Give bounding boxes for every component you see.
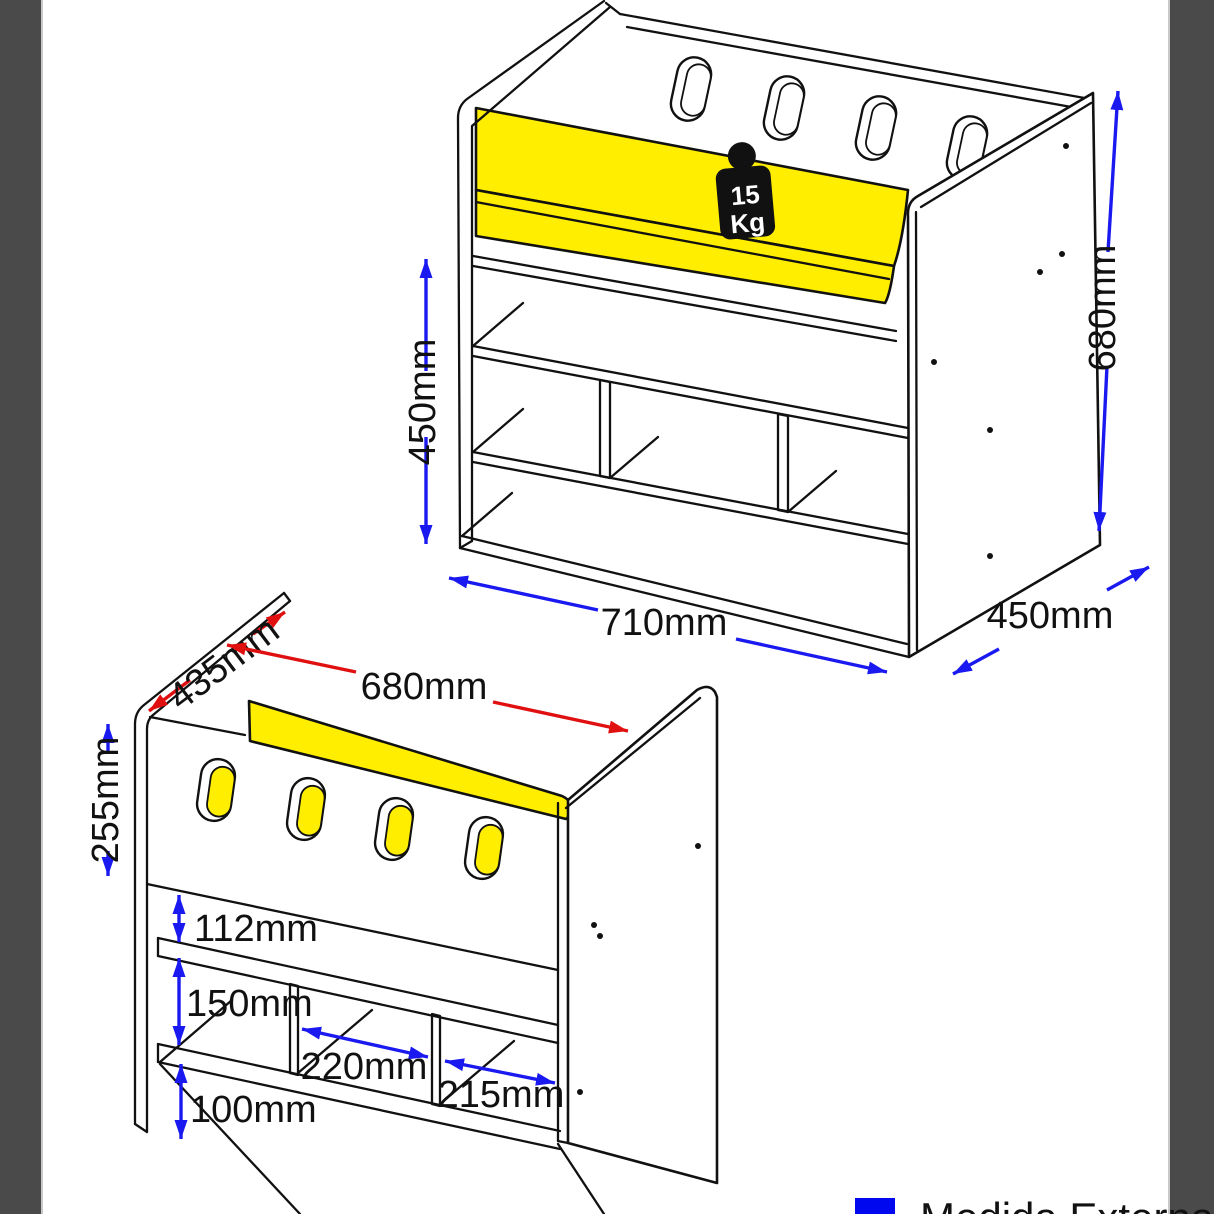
- shelf-structure-front: [460, 256, 909, 657]
- inner-width-label: 680mm: [361, 666, 488, 708]
- panel-height-dimension: 255mm: [85, 724, 127, 876]
- back-depth-label: 435mm: [161, 609, 287, 719]
- legend: Medida Externa: [855, 1194, 1214, 1214]
- oval-cutout: [373, 796, 415, 862]
- right-cubby-dimension: 215mm: [438, 1061, 565, 1116]
- furniture-dimension-diagram: 15 Kg 450mm 680mm 710mm: [0, 0, 1214, 1214]
- top-gap-label: 112mm: [194, 908, 318, 950]
- weight-unit: Kg: [729, 206, 766, 239]
- right-side-panel-back: [558, 687, 717, 1183]
- bottom-gap-label: 100mm: [190, 1089, 317, 1131]
- panel-height-label: 255mm: [85, 737, 127, 864]
- middle-gap-label: 150mm: [186, 983, 313, 1025]
- width-label: 710mm: [601, 602, 728, 644]
- left-side-panel: [458, 1, 610, 548]
- seat-cushion: [476, 108, 908, 303]
- front-isometric-view: 15 Kg 450mm 680mm 710mm: [402, 1, 1149, 674]
- seat-height-label: 450mm: [402, 339, 444, 466]
- oval-cutout: [285, 776, 327, 842]
- right-side-panel: [908, 93, 1100, 657]
- oval-cutout: [853, 93, 900, 163]
- external-measure-swatch: [855, 1198, 895, 1214]
- middle-gap-dimension: 150mm: [179, 958, 313, 1045]
- back-isometric-view: 435mm 680mm 255mm 112mm: [85, 593, 717, 1214]
- total-height-label: 680mm: [1082, 245, 1124, 372]
- oval-cutout: [463, 815, 505, 881]
- oval-cutout: [668, 54, 715, 124]
- back-view-red-dimensions: 435mm 680mm: [149, 609, 628, 731]
- depth-label: 450mm: [987, 595, 1114, 637]
- middle-cubby-label: 220mm: [301, 1046, 428, 1088]
- diagram-canvas: 15 Kg 450mm 680mm 710mm: [0, 0, 1214, 1214]
- oval-cutout: [761, 73, 808, 143]
- right-cubby-label: 215mm: [438, 1074, 565, 1116]
- top-gap-dimension: 112mm: [179, 895, 318, 950]
- middle-cubby-dimension: 220mm: [301, 1029, 428, 1088]
- width-dimension: 710mm: [449, 578, 887, 672]
- seat-height-dimension: 450mm: [402, 259, 444, 544]
- oval-cutout: [195, 757, 237, 823]
- external-measure-label: Medida Externa: [920, 1194, 1214, 1214]
